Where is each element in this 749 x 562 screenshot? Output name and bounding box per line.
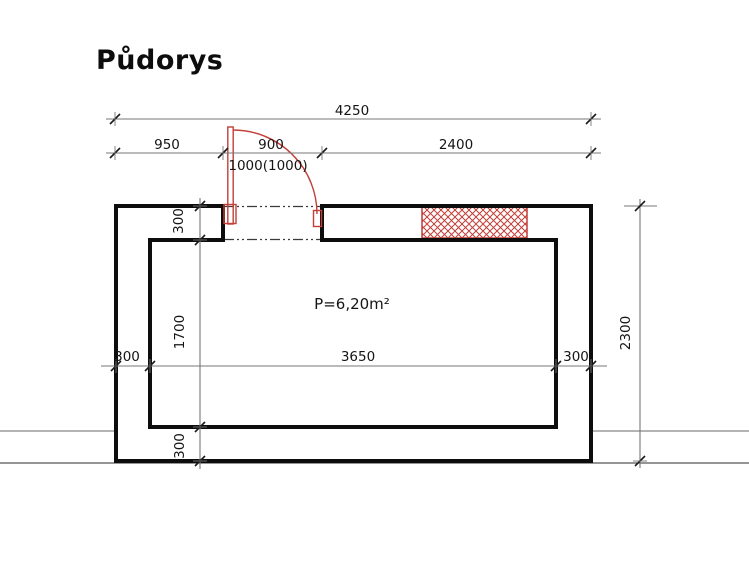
dim-label-wall-bottom: 300 xyxy=(172,433,188,459)
dim-label-wall-left: 300 xyxy=(114,349,140,365)
dim-label-room-depth: 1700 xyxy=(172,315,188,349)
dim-label-door-note: 1000(1000) xyxy=(228,158,307,174)
room-area-label: P=6,20m² xyxy=(314,295,390,313)
dim-label-seg-right: 2400 xyxy=(439,137,473,153)
floor-plan-drawing: 4250 950 900 2400 1000(1000) 300 3650 30… xyxy=(0,0,749,562)
dim-label-wall-right: 300 xyxy=(563,349,589,365)
window-hatch xyxy=(422,207,527,238)
dim-label-seg-left: 950 xyxy=(154,137,180,153)
dim-label-wall-top: 300 xyxy=(171,208,187,234)
dim-label-total-height: 2300 xyxy=(618,316,634,350)
dim-label-seg-door: 900 xyxy=(258,137,284,153)
dim-label-room-width: 3650 xyxy=(341,349,375,365)
floor-plan-page: Půdorys xyxy=(0,0,749,562)
drawing-title: Půdorys xyxy=(96,45,223,76)
dim-label-total-width: 4250 xyxy=(335,103,369,119)
